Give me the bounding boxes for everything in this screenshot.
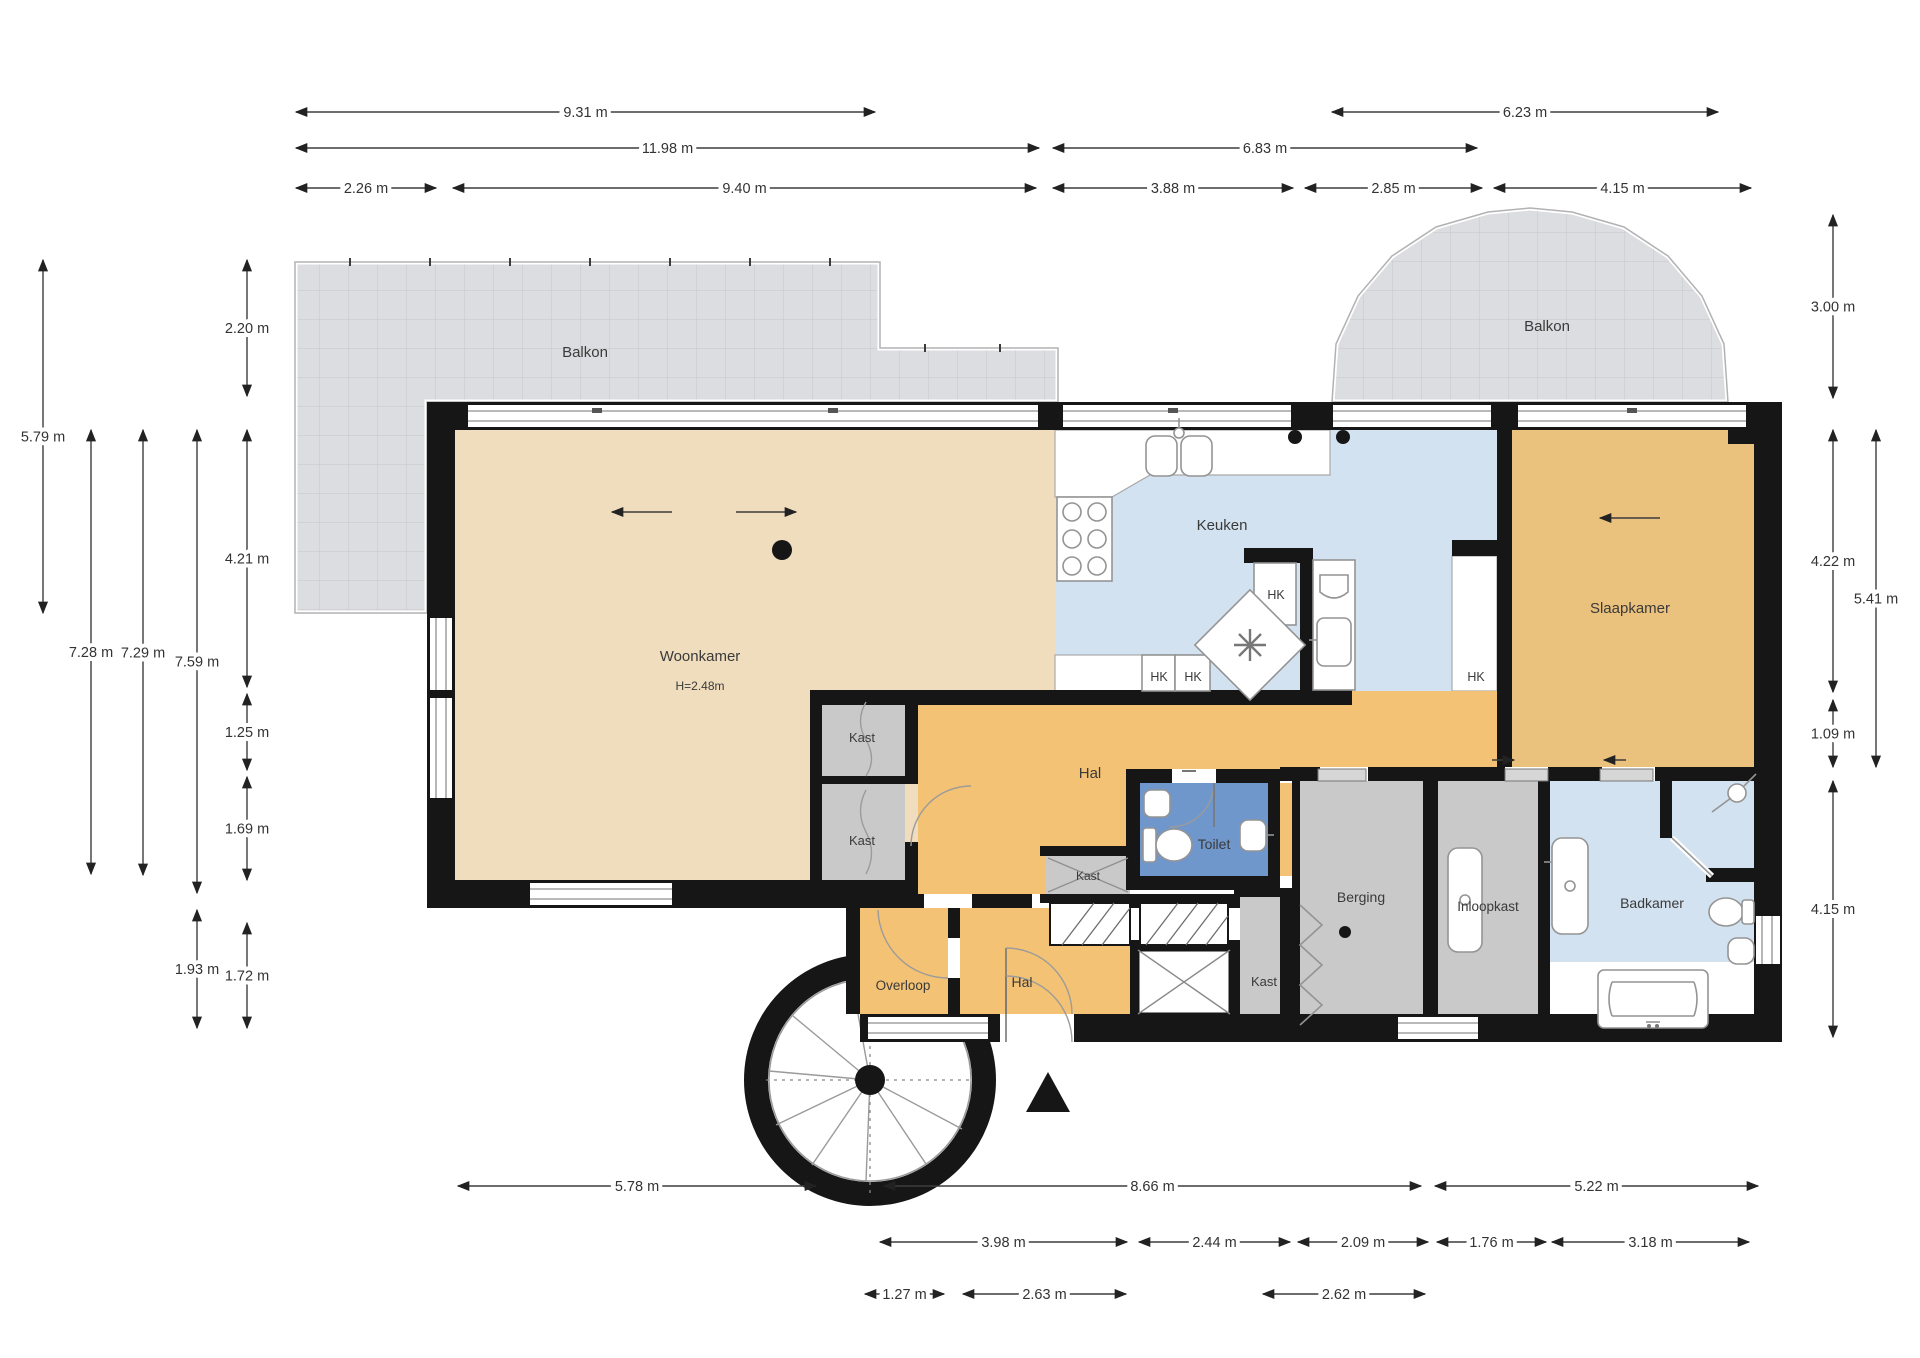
dimension-label: 1.25 m	[225, 725, 269, 741]
dimension-label: 1.09 m	[1811, 727, 1855, 743]
dimension-label: 9.31 m	[563, 105, 607, 121]
room-label-kast-1: Kast	[849, 730, 875, 745]
shaft-hatched	[1050, 903, 1228, 945]
dimension-label: 11.98 m	[642, 141, 693, 157]
room-slaapkamer	[1512, 430, 1754, 767]
dimension-label: 3.88 m	[1151, 181, 1195, 197]
entrance-marker	[1026, 1072, 1070, 1112]
dimension-label: 1.76 m	[1469, 1235, 1513, 1251]
room-kast-2	[822, 784, 905, 880]
dimension-label: 1.27 m	[882, 1287, 926, 1303]
dimension-label: 4.15 m	[1811, 902, 1855, 918]
hk-label: HK	[1150, 670, 1168, 684]
hk-label: HK	[1184, 670, 1202, 684]
dimension-label: 5.22 m	[1574, 1179, 1618, 1195]
elevator-shaft	[1138, 950, 1230, 1014]
berging-dot	[1339, 926, 1351, 938]
hk-label: HK	[1467, 670, 1485, 684]
floorplan-drawing: 9.31 m6.23 m11.98 m6.83 m2.26 m9.40 m3.8…	[0, 0, 1920, 1358]
stove-icon	[1057, 497, 1112, 581]
dimension-label: 4.22 m	[1811, 554, 1855, 570]
room-label-woonkamer: Woonkamer	[660, 648, 741, 665]
room-label-hal-upper: Hal	[1079, 765, 1102, 782]
room-label-kast-2: Kast	[849, 833, 875, 848]
dimension-label: 2.09 m	[1341, 1235, 1385, 1251]
room-label-keuken: Keuken	[1197, 517, 1248, 534]
dimension-label: 2.26 m	[344, 181, 388, 197]
room-label-slaapkamer: Slaapkamer	[1590, 600, 1670, 617]
utility-closet	[1309, 560, 1355, 690]
room-label-kast-small: Kast	[1076, 869, 1101, 883]
dimension-label: 4.15 m	[1600, 181, 1644, 197]
room-label-overloop: Overloop	[876, 978, 931, 993]
room-overloop	[860, 908, 948, 1014]
room-label-berging: Berging	[1337, 889, 1385, 905]
dimension-label: 1.69 m	[225, 822, 269, 838]
dimension-label: 8.66 m	[1130, 1179, 1174, 1195]
room-label-balkon-right: Balkon	[1524, 318, 1570, 335]
dimension-label: 7.28 m	[69, 645, 113, 661]
dimension-label: 2.44 m	[1192, 1235, 1236, 1251]
room-label-hal-lower: Hal	[1011, 974, 1032, 990]
dimension-label: 3.18 m	[1628, 1235, 1672, 1251]
dimension-label: 1.72 m	[225, 969, 269, 985]
dimension-label: 5.78 m	[615, 1179, 659, 1195]
floorplan-page: 9.31 m6.23 m11.98 m6.83 m2.26 m9.40 m3.8…	[0, 0, 1920, 1358]
hk-label: HK	[1267, 588, 1285, 602]
room-label-inloopkast: Inloopkast	[1457, 899, 1519, 914]
dimension-label: 7.29 m	[121, 646, 165, 662]
dimension-label: 6.23 m	[1503, 105, 1547, 121]
dimension-label: 9.40 m	[722, 181, 766, 197]
dimension-label: 3.00 m	[1811, 300, 1855, 316]
room-label-woonkamer-height: H=2.48m	[675, 679, 724, 693]
room-label-badkamer: Badkamer	[1620, 895, 1684, 911]
door-pivot-dot	[1288, 430, 1302, 444]
dimension-label: 7.59 m	[175, 655, 219, 671]
dimension-label: 2.20 m	[225, 321, 269, 337]
dimension-label: 6.83 m	[1243, 141, 1287, 157]
dimension-label: 3.98 m	[981, 1235, 1025, 1251]
dimension-label: 5.41 m	[1854, 592, 1898, 608]
room-label-kast-right: Kast	[1251, 974, 1277, 989]
dimension-label: 5.79 m	[21, 430, 65, 446]
dimension-label: 2.85 m	[1371, 181, 1415, 197]
dimension-label: 4.21 m	[225, 552, 269, 568]
ceiling-point-dot	[772, 540, 792, 560]
door-pivot-dot	[1336, 430, 1350, 444]
dimension-label: 1.93 m	[175, 962, 219, 978]
room-label-balkon-left: Balkon	[562, 344, 608, 361]
room-label-toilet: Toilet	[1198, 836, 1231, 852]
dimension-label: 2.62 m	[1322, 1287, 1366, 1303]
balcony-right	[1332, 208, 1728, 402]
dimension-label: 2.63 m	[1022, 1287, 1066, 1303]
